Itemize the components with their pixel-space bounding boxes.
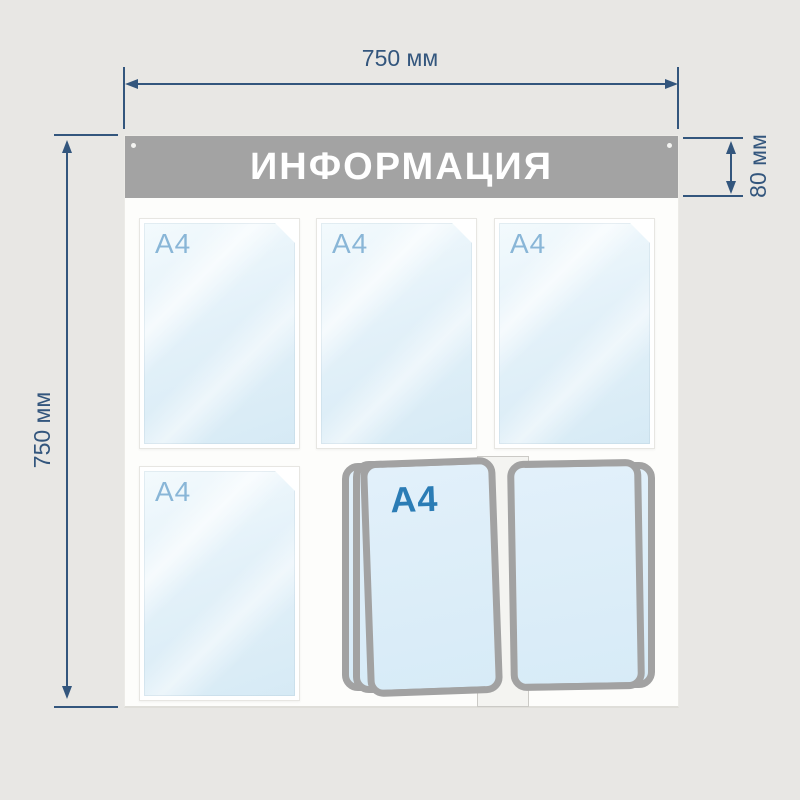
a4-pocket-3: A4: [494, 218, 655, 449]
extension-line-left: [123, 67, 125, 129]
arrowhead-down-icon: [62, 686, 72, 699]
a4-pocket-4: A4: [139, 466, 300, 701]
a4-pocket-1: A4: [139, 218, 300, 449]
header-height-dimension-label: 80 мм: [746, 116, 770, 216]
a4-pocket-2: A4: [316, 218, 477, 449]
board-title: ИНФОРМАЦИЯ: [125, 136, 678, 198]
tick-header-top: [683, 137, 743, 139]
board-header: ИНФОРМАЦИЯ: [125, 136, 678, 198]
arrowhead-up-small-icon: [726, 141, 736, 154]
tick-bottom: [54, 706, 118, 708]
pocket-size-label: A4: [510, 228, 546, 260]
arrowhead-down-small-icon: [726, 181, 736, 194]
arrowhead-up-icon: [62, 140, 72, 153]
width-dimension-line: [130, 83, 673, 85]
flip-page-open-left: A4: [360, 457, 503, 698]
height-dimension-label: 750 мм: [30, 370, 54, 490]
arrowhead-left-icon: [125, 79, 138, 89]
extension-line-right: [677, 67, 679, 129]
product-dimension-diagram: 750 мм 750 мм 80 мм ИНФОРМАЦИЯ A4 A4: [0, 0, 800, 800]
pocket-size-label: A4: [332, 228, 368, 260]
pocket-size-label: A4: [155, 228, 191, 260]
info-board: ИНФОРМАЦИЯ A4 A4 A4 A4 A4: [124, 135, 679, 708]
flip-page-size-label: A4: [390, 478, 439, 522]
height-dimension-line: [66, 148, 68, 691]
tick-header-bottom: [683, 195, 743, 197]
flip-page-open-right: [507, 459, 645, 691]
pocket-size-label: A4: [155, 476, 191, 508]
width-dimension-label: 750 мм: [280, 46, 520, 70]
tick-top: [54, 134, 118, 136]
